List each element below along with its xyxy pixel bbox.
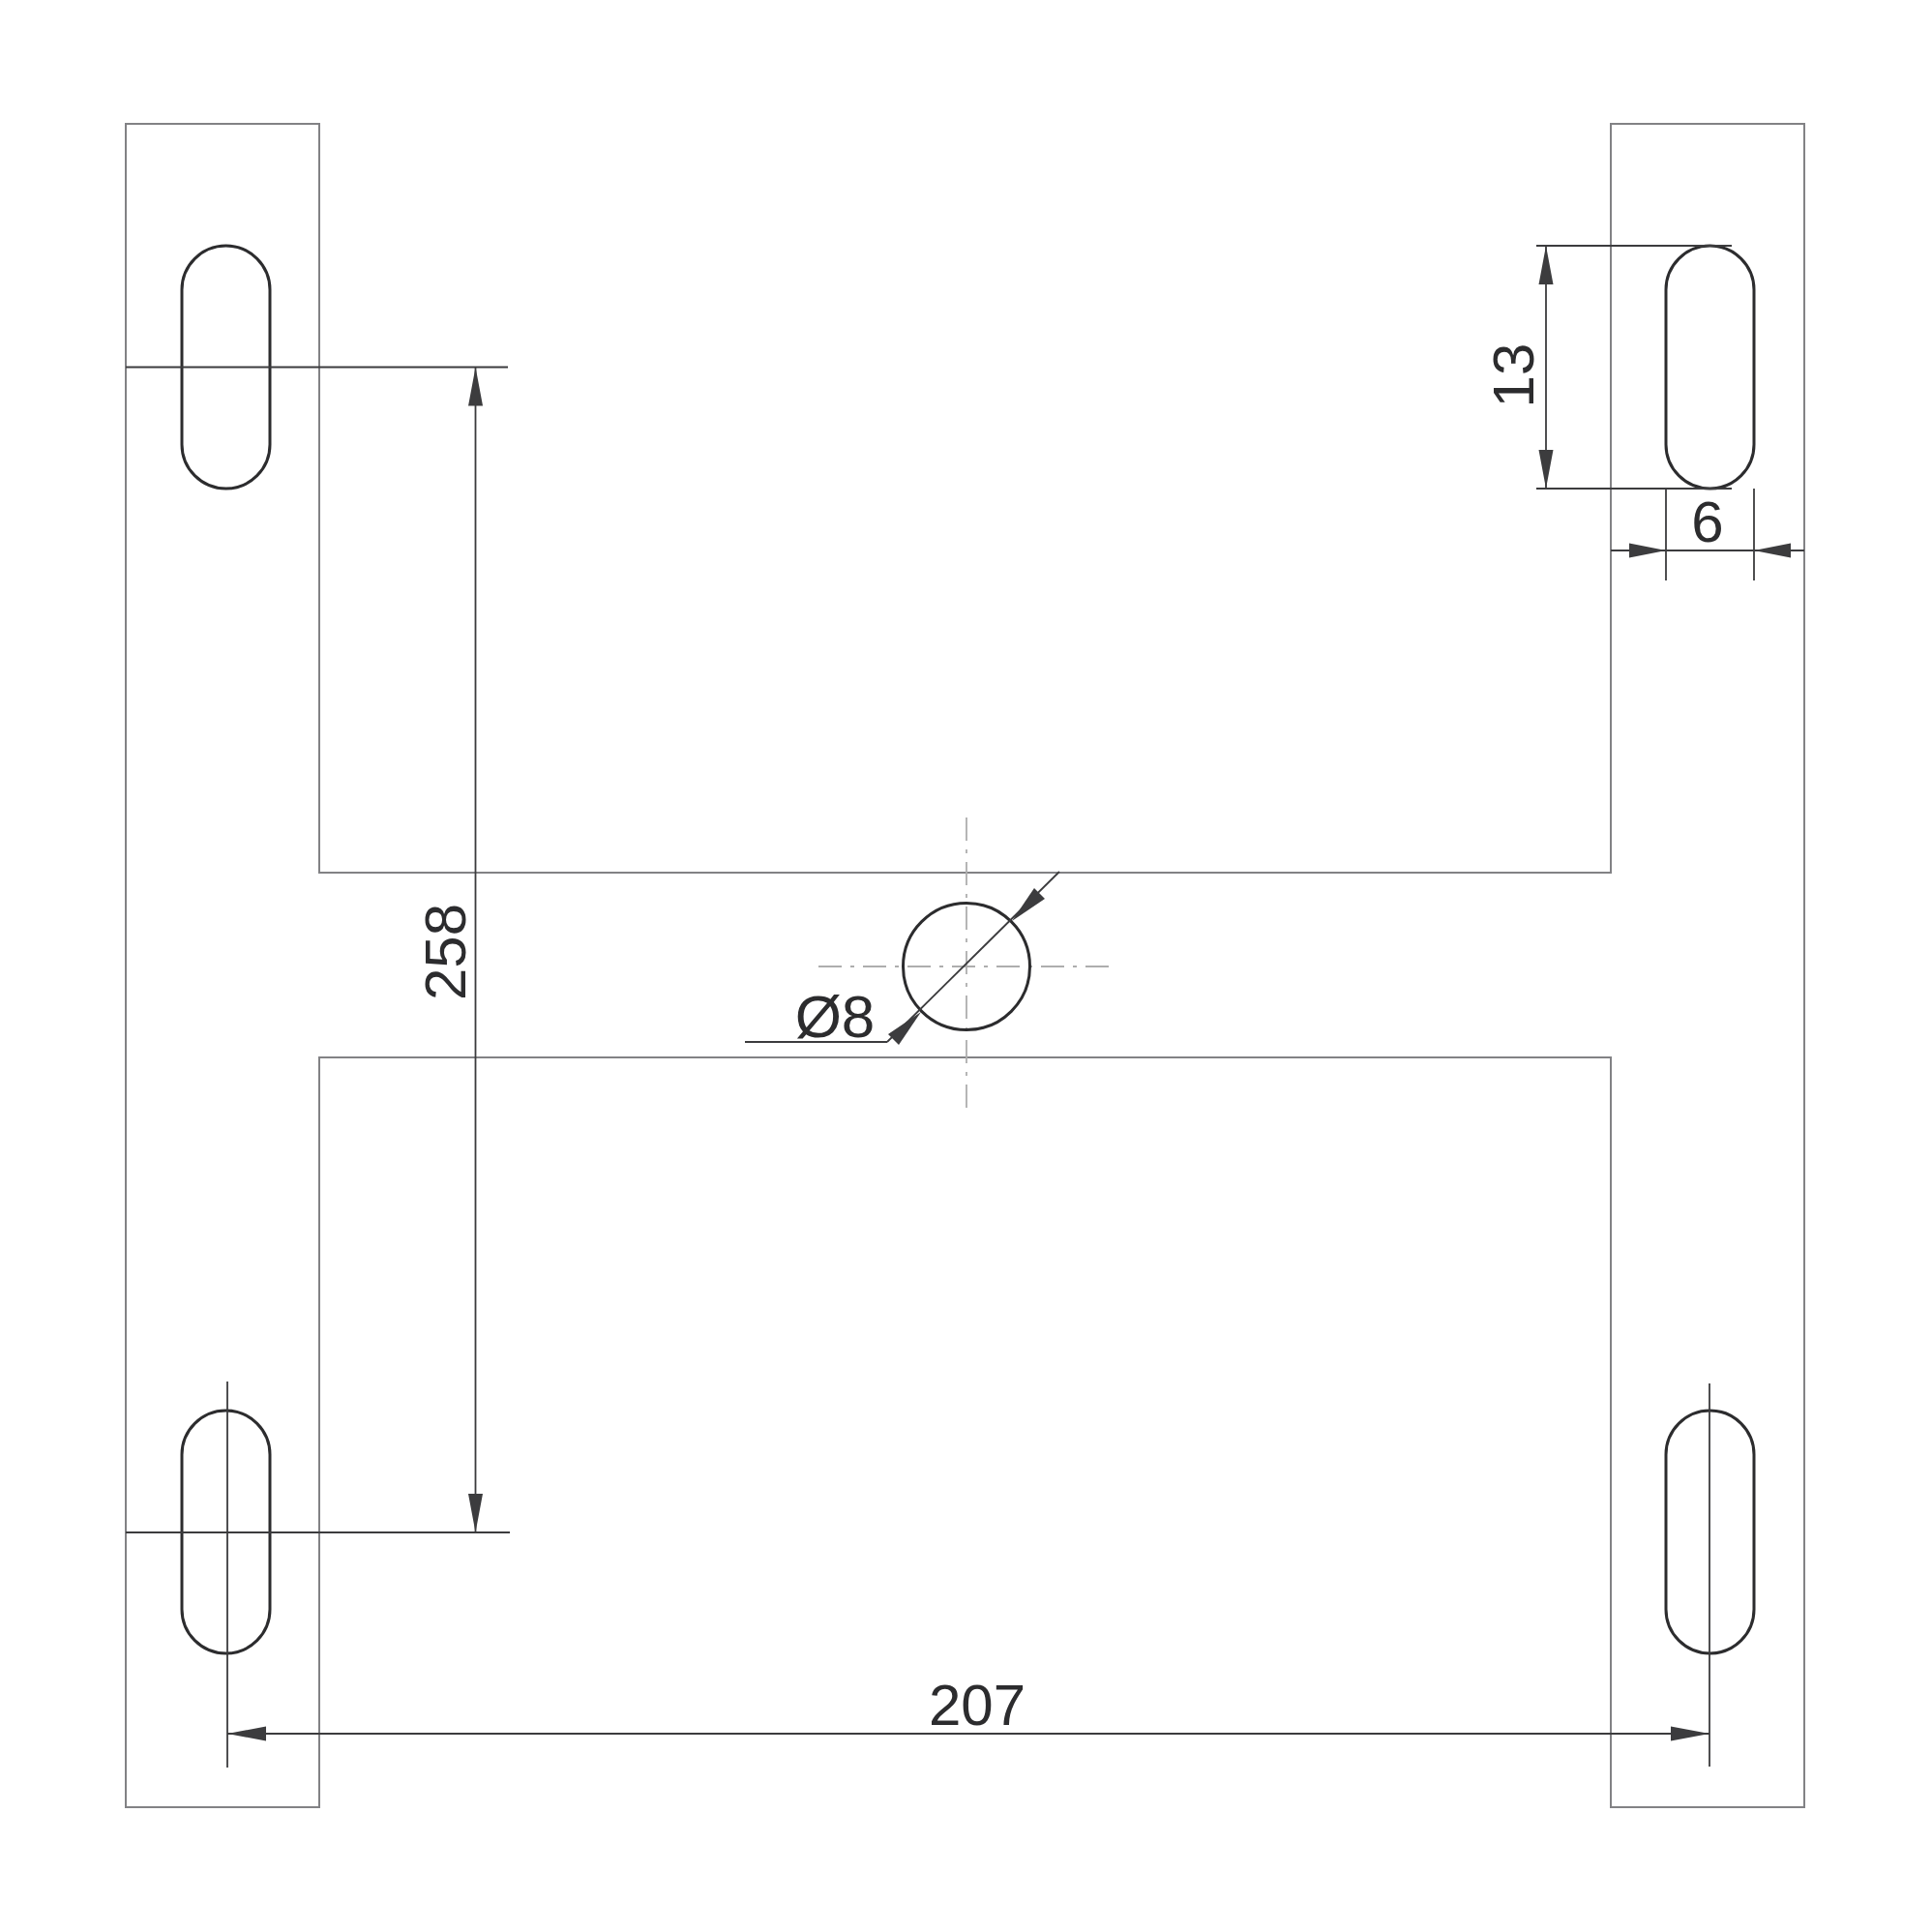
- dim-207-arrow-right: [1671, 1727, 1709, 1741]
- engineering-drawing: 258 13 6 207: [0, 0, 1932, 1932]
- dimension-6: 6: [1611, 489, 1804, 580]
- dimension-13: 13: [1481, 246, 1732, 489]
- drawing-canvas: 258 13 6 207: [0, 0, 1932, 1932]
- center-hole-group: [818, 817, 1115, 1113]
- dim-207-label: 207: [929, 1673, 1025, 1738]
- dim-258-label: 258: [413, 904, 478, 1000]
- dimension-258: 258: [126, 368, 510, 1533]
- dim-258-arrow-top: [468, 368, 483, 406]
- dim-258-arrow-bottom: [468, 1494, 483, 1532]
- dimension-207: 207: [227, 1382, 1709, 1768]
- dim-13-label: 13: [1481, 343, 1546, 408]
- dim-6-label: 6: [1691, 490, 1723, 554]
- dim-6-arrow-right: [1754, 544, 1791, 558]
- dim-207-arrow-left: [227, 1727, 266, 1741]
- dim-6-arrow-left: [1629, 544, 1666, 558]
- slot-top-right: [1666, 246, 1754, 489]
- dim-dia8-arrow-upper: [1012, 888, 1045, 921]
- dim-13-arrow-top: [1539, 246, 1554, 284]
- dim-dia8-label: Ø8: [795, 983, 876, 1050]
- dim-dia8-arrow-lower: [888, 1012, 921, 1045]
- dim-13-arrow-bottom: [1539, 450, 1554, 489]
